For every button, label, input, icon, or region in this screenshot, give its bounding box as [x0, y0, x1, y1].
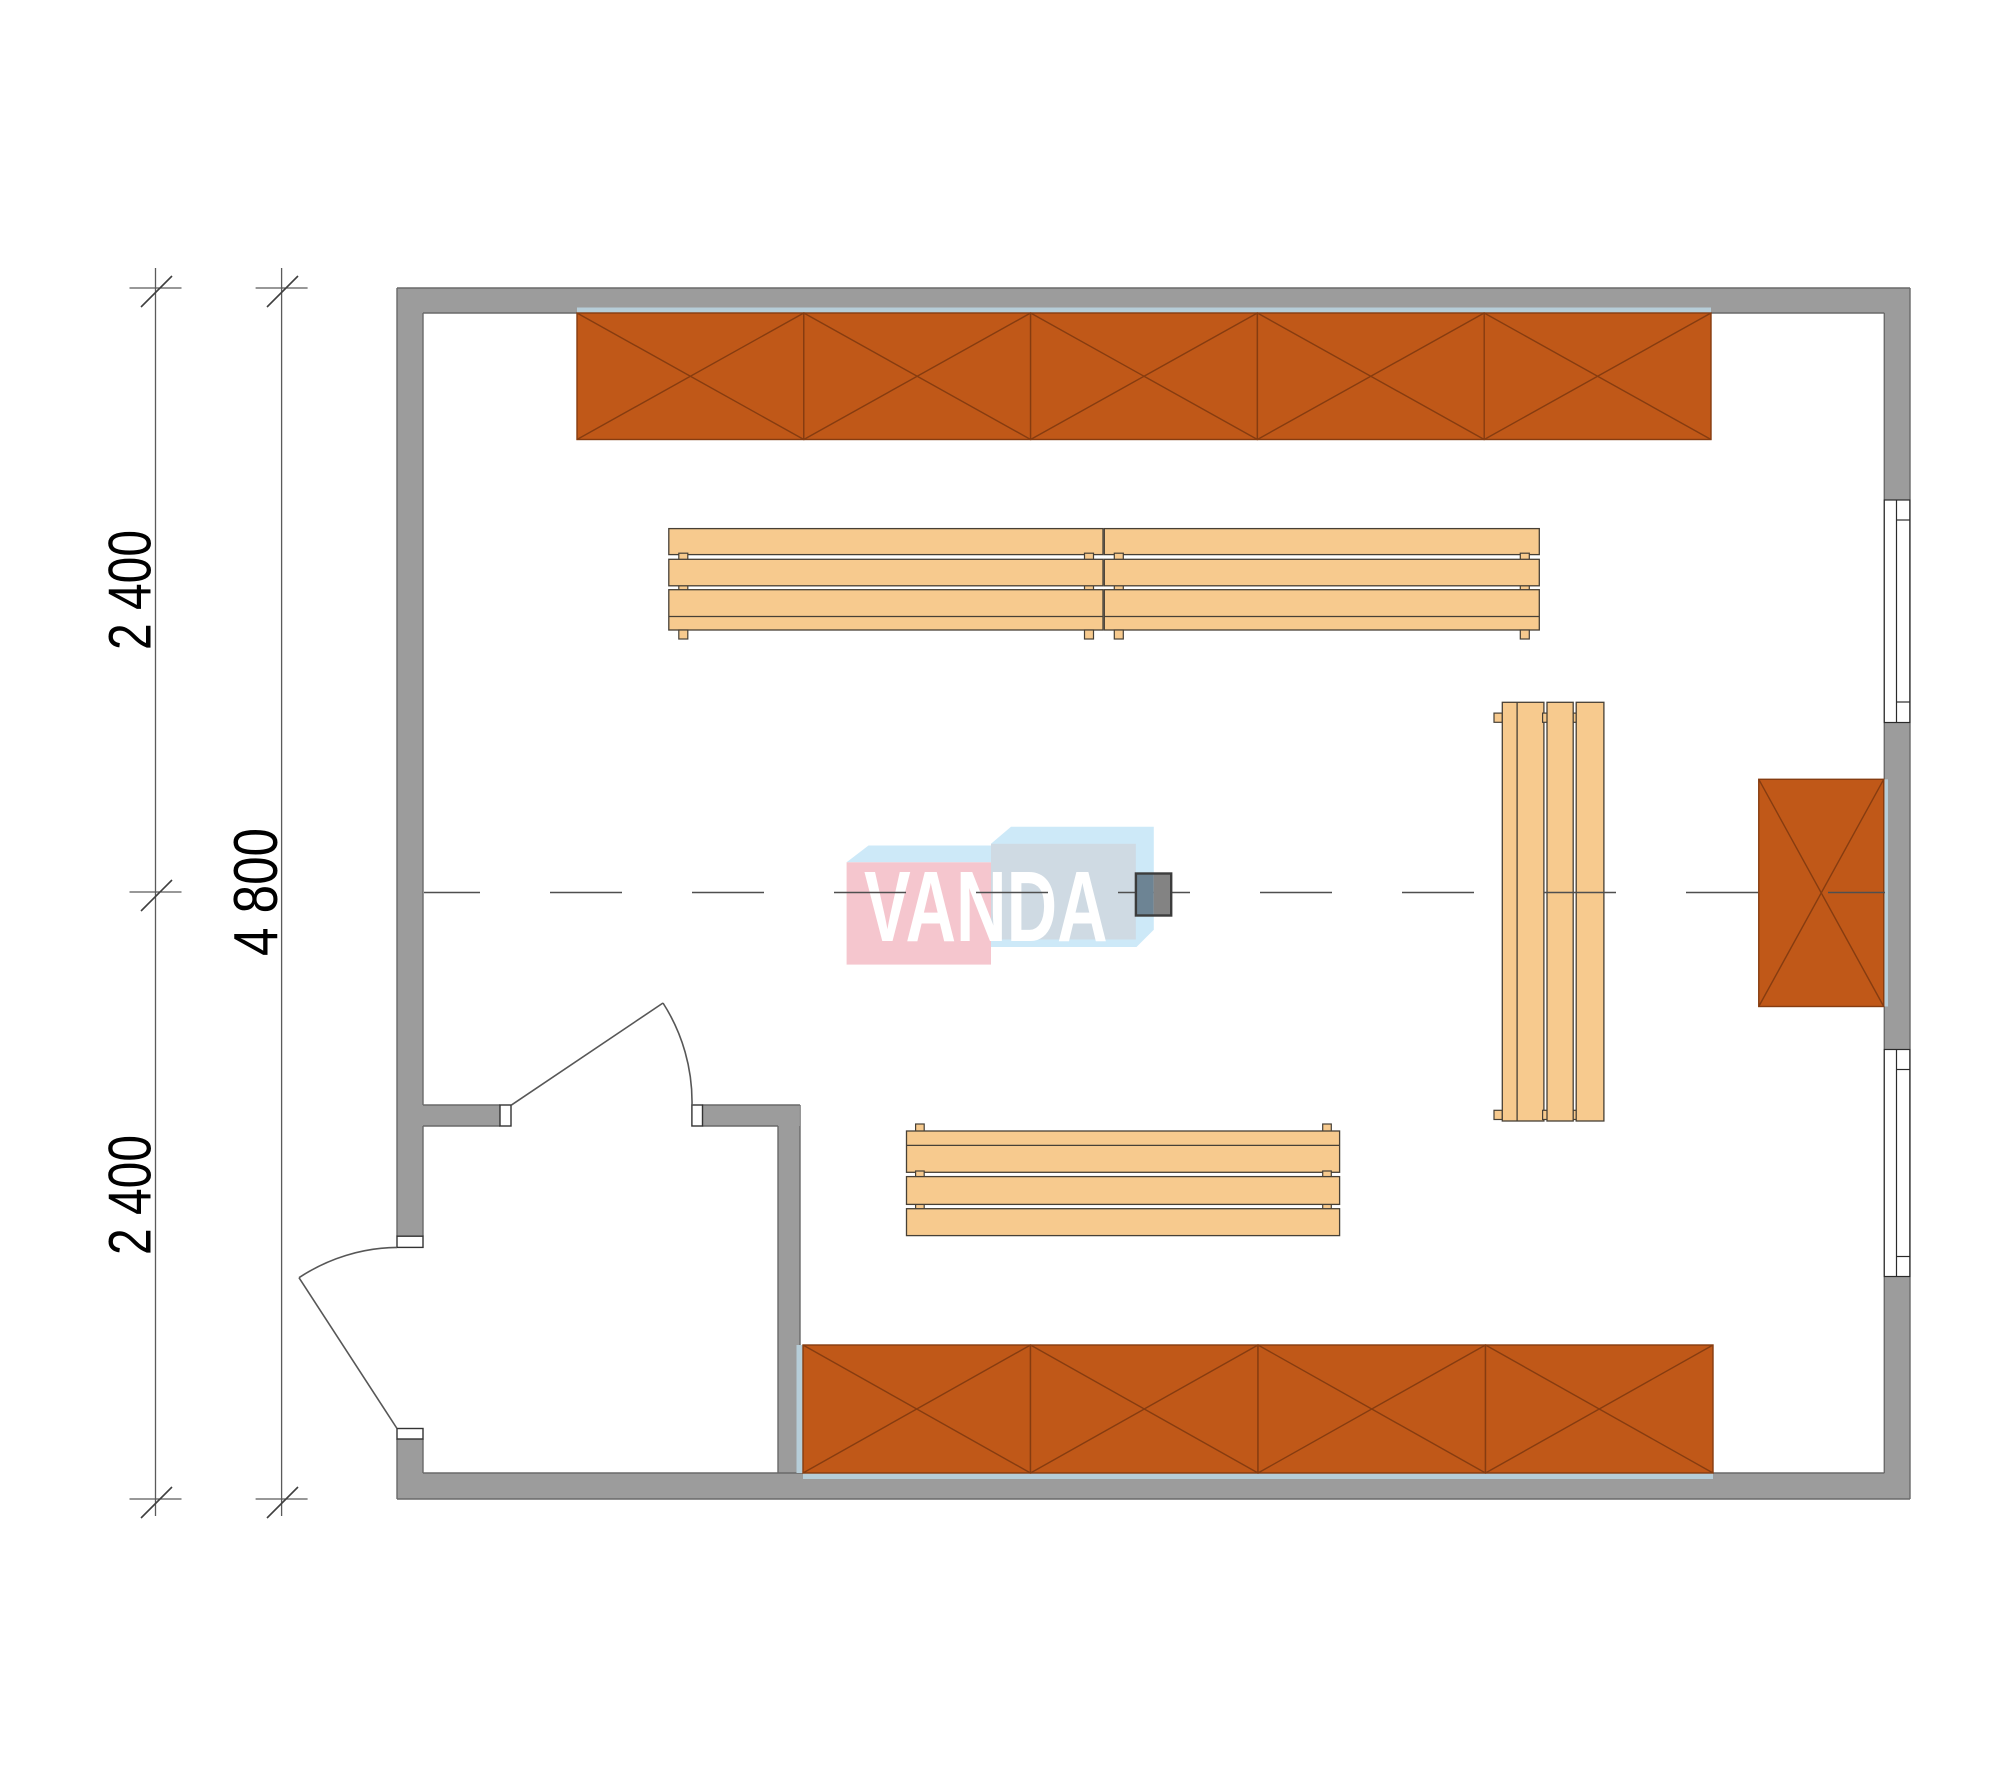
svg-text:2 400: 2 400	[97, 530, 164, 650]
svg-text:4 800: 4 800	[222, 828, 291, 956]
svg-text:VANDA: VANDA	[864, 852, 1108, 963]
svg-text:2 400: 2 400	[97, 1135, 164, 1255]
